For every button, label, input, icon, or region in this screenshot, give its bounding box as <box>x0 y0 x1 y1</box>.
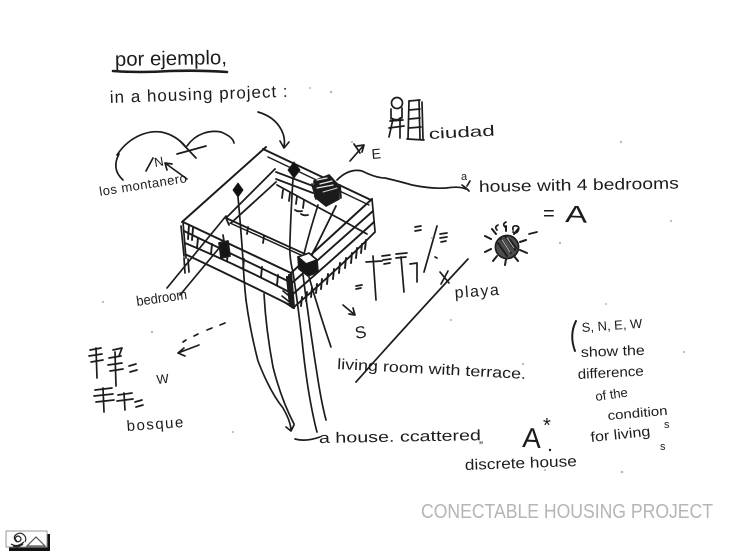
svg-text:of the: of the <box>594 385 628 404</box>
svg-text:show the: show the <box>581 342 646 360</box>
svg-text:=: = <box>543 203 555 225</box>
svg-text:ciudad: ciudad <box>428 123 495 143</box>
svg-text:s: s <box>660 441 666 453</box>
svg-text:living room with terrace.: living room with terrace. <box>337 356 527 383</box>
svg-text:a: a <box>461 171 468 183</box>
svg-text:bedroom: bedroom <box>135 286 188 309</box>
svg-text:W: W <box>156 371 170 387</box>
svg-text:los montanero: los montanero <box>98 170 188 199</box>
svg-text:discrete house: discrete house <box>465 453 578 474</box>
svg-text:playa: playa <box>454 282 501 302</box>
svg-text:for living: for living <box>590 423 651 445</box>
svg-text:*: * <box>543 415 551 437</box>
svg-text:S: S <box>353 322 367 343</box>
svg-text:a house. ccattered: a house. ccattered <box>319 427 481 447</box>
svg-text:bosque: bosque <box>126 414 185 435</box>
svg-text:condition: condition <box>607 403 668 423</box>
svg-text:house with 4 bedrooms: house with 4 bedrooms <box>479 176 679 196</box>
svg-text:E: E <box>371 145 382 162</box>
svg-text:CONECTABLE HOUSING PROJECT: CONECTABLE HOUSING PROJECT <box>421 501 713 523</box>
svg-text:A: A <box>522 422 543 454</box>
svg-text:s: s <box>664 419 670 431</box>
svg-text:N: N <box>153 154 165 170</box>
svg-text:in a housing project :: in a housing project : <box>109 82 288 107</box>
svg-text:por ejemplo,: por ejemplo, <box>115 47 227 71</box>
svg-text:”: ” <box>479 439 483 453</box>
svg-text:difference: difference <box>577 363 644 382</box>
svg-text:S, N, E, W: S, N, E, W <box>581 316 643 335</box>
svg-text:A: A <box>565 201 588 229</box>
